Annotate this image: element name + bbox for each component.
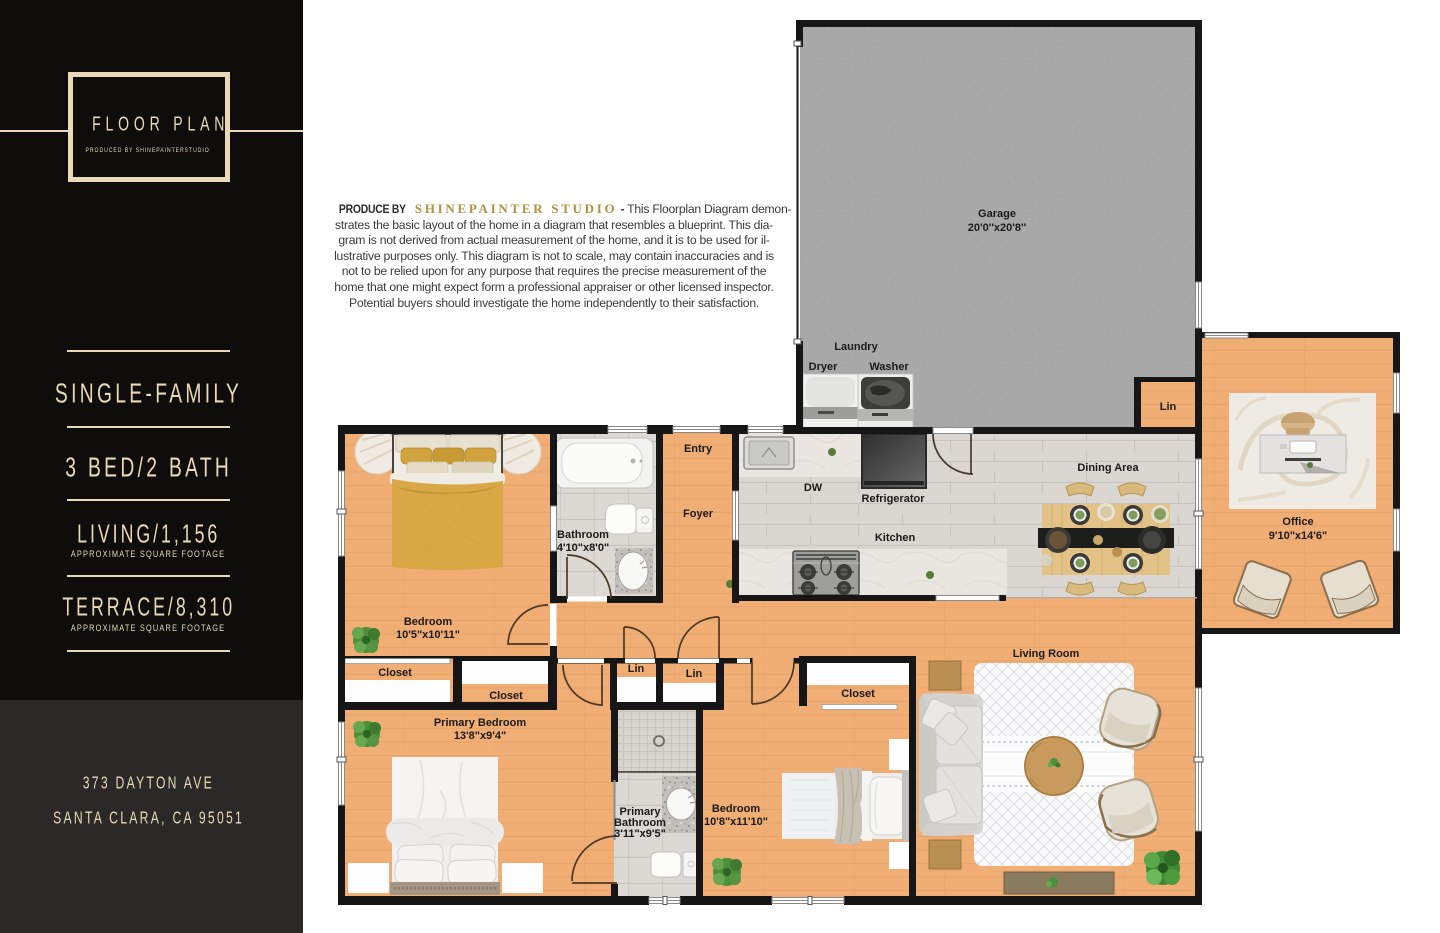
svg-text:Bedroom: Bedroom (712, 803, 761, 815)
svg-text:Closet: Closet (841, 688, 875, 700)
svg-text:Lin: Lin (1160, 401, 1177, 413)
svg-text:Foyer: Foyer (683, 508, 714, 520)
svg-text:Bathroom: Bathroom (557, 529, 609, 541)
svg-text:20'0''x20'8'': 20'0''x20'8'' (968, 222, 1027, 234)
svg-text:Entry: Entry (684, 443, 713, 455)
svg-text:Closet: Closet (378, 667, 412, 679)
svg-text:Dining Area: Dining Area (1077, 462, 1139, 474)
svg-text:Laundry: Laundry (834, 341, 878, 353)
svg-text:13'8"x9'4": 13'8"x9'4" (454, 730, 506, 742)
svg-text:10'8"x11'10": 10'8"x11'10" (704, 816, 768, 828)
svg-text:10'5"x10'11": 10'5"x10'11" (396, 629, 460, 641)
svg-text:9'10"x14'6": 9'10"x14'6" (1269, 530, 1328, 542)
svg-text:Living Room: Living Room (1013, 648, 1080, 660)
svg-text:Closet: Closet (489, 690, 523, 702)
svg-text:3'11"x9'5": 3'11"x9'5" (614, 828, 666, 840)
svg-text:Refrigerator: Refrigerator (862, 493, 926, 505)
svg-text:Lin: Lin (686, 668, 703, 680)
svg-text:Kitchen: Kitchen (875, 532, 916, 544)
svg-text:DW: DW (804, 482, 823, 494)
svg-text:Washer: Washer (869, 361, 909, 373)
svg-text:Primary Bedroom: Primary Bedroom (434, 717, 527, 729)
svg-text:Lin: Lin (628, 663, 645, 675)
svg-text:Garage: Garage (978, 208, 1016, 220)
svg-text:4'10"x8'0": 4'10"x8'0" (557, 542, 609, 554)
svg-text:Bedroom: Bedroom (404, 616, 453, 628)
svg-text:Dryer: Dryer (809, 361, 838, 373)
svg-text:Office: Office (1282, 516, 1313, 528)
